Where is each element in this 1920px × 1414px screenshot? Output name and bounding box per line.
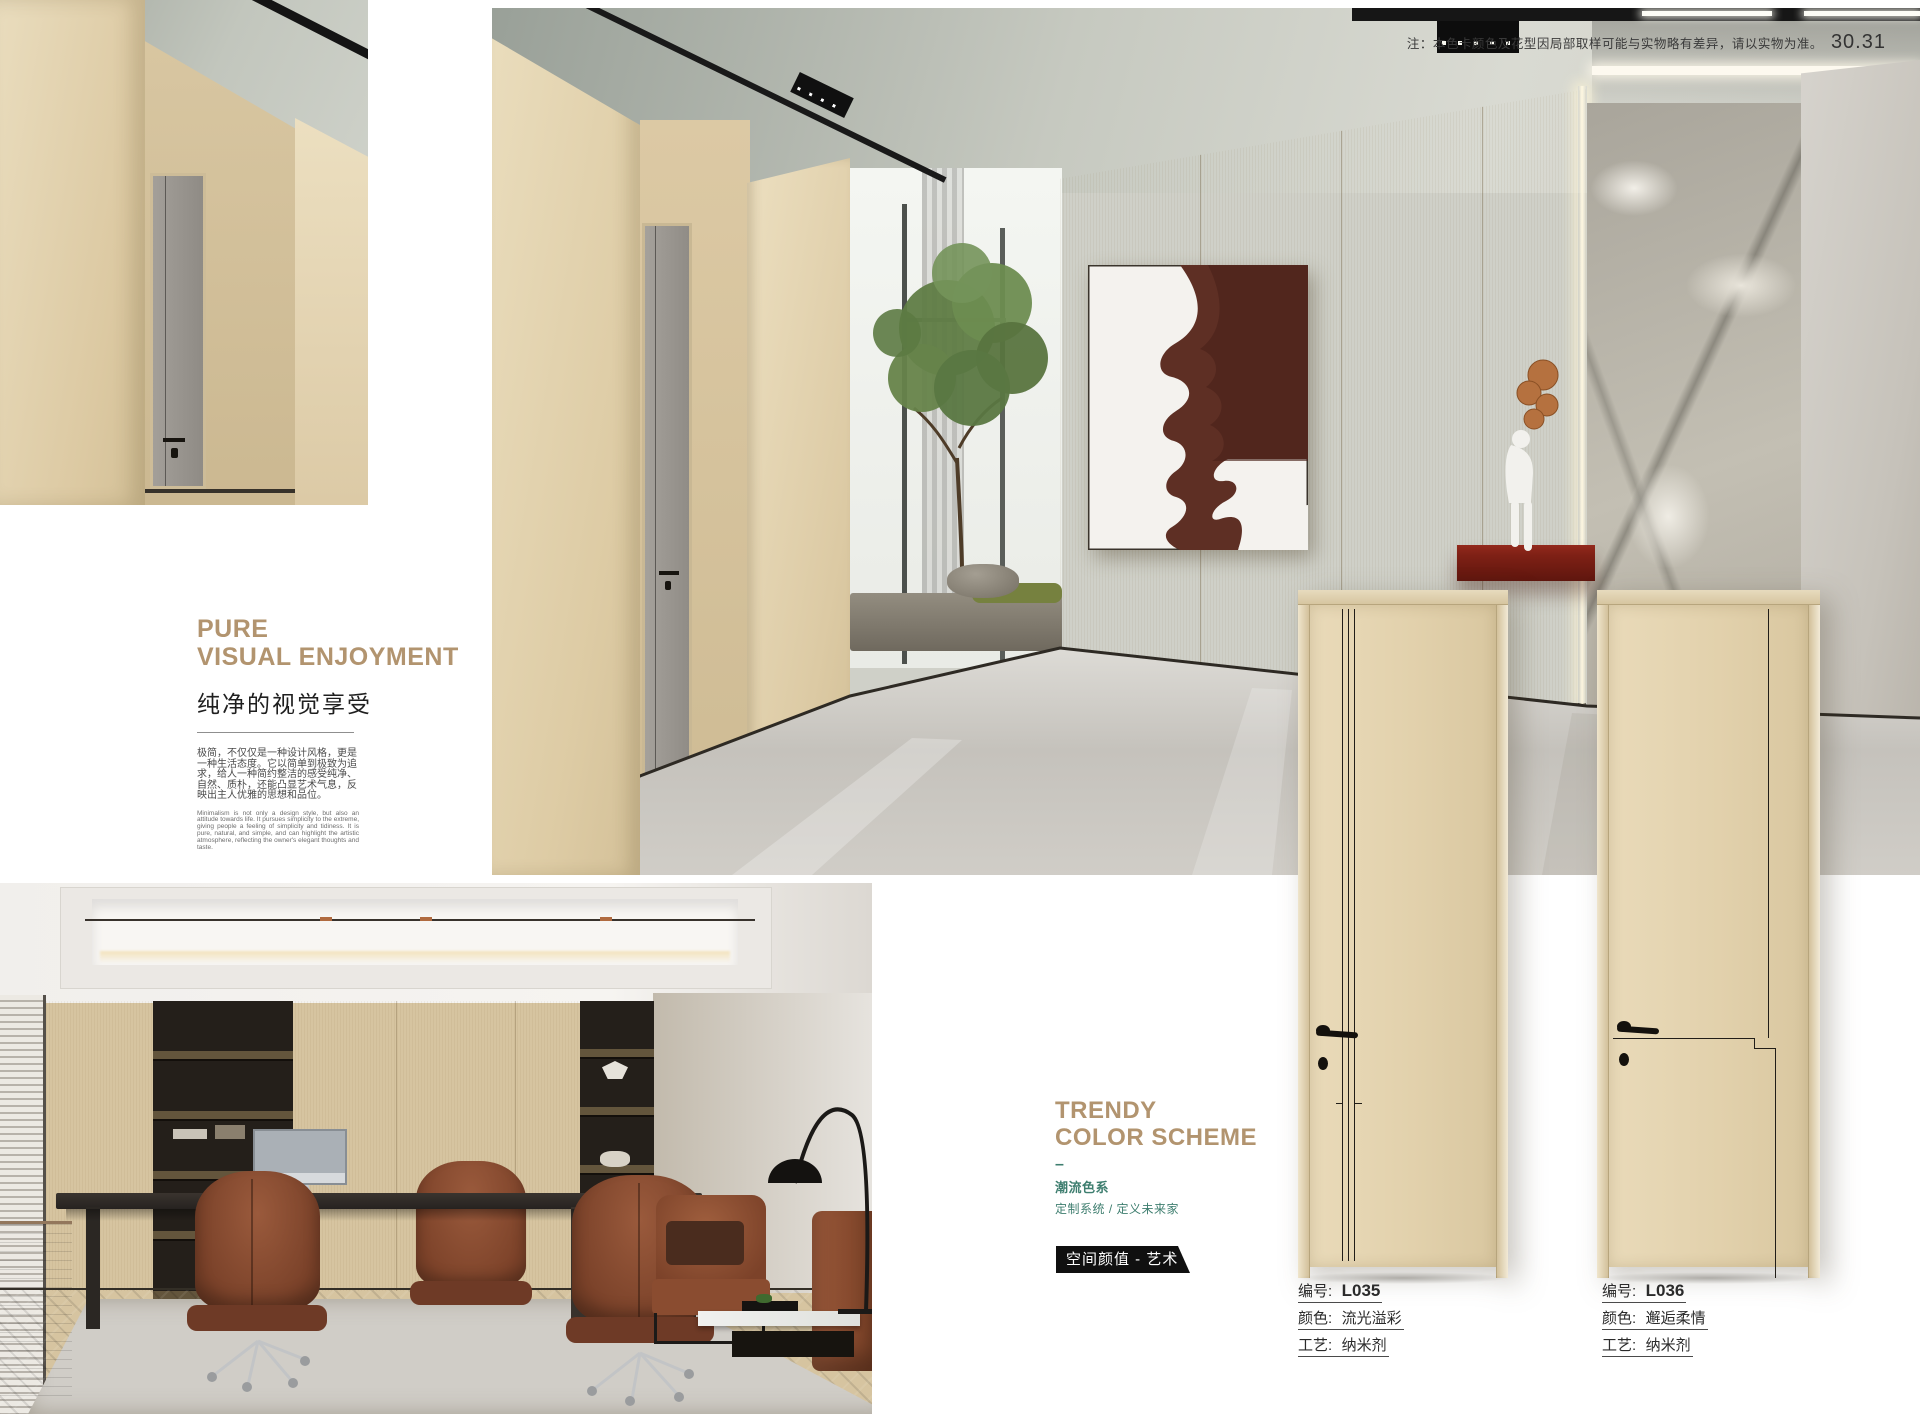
interior-door-gray bbox=[150, 173, 206, 489]
spec-craft-label: 工艺: bbox=[1298, 1337, 1332, 1354]
foreground-wall bbox=[492, 8, 640, 875]
badge-label: 空间颜值 - 艺术 bbox=[1056, 1246, 1190, 1273]
spec-craft-value: 纳米剂 bbox=[1646, 1337, 1691, 1354]
spec-code-label: 编号: bbox=[1298, 1283, 1332, 1300]
spec-craft-label: 工艺: bbox=[1602, 1337, 1636, 1354]
spec-color-label: 颜色: bbox=[1602, 1310, 1636, 1327]
trendy-subtitle-zh: 潮流色系 bbox=[1055, 1177, 1295, 1196]
spec-l036: 编号: L036 颜色: 邂逅柔情 工艺: 纳米剂 bbox=[1602, 1280, 1708, 1357]
pure-body-zh: 极简，不仅仅是一种设计风格，更是一种生活态度。它以简单到极致为追求，给人一种简约… bbox=[197, 749, 357, 802]
photo-door-corner bbox=[0, 0, 368, 505]
product-door-l036 bbox=[1597, 590, 1820, 1278]
right-wall bbox=[295, 118, 368, 505]
trendy-title-line1: TRENDY bbox=[1055, 1098, 1295, 1125]
catalog-page: 注：本色卡颜色及花型因局部取样可能与实物略有差异，请以实物为准。 30.31 P… bbox=[0, 0, 1920, 1414]
door-handle bbox=[163, 438, 185, 442]
trendy-section: TRENDY COLOR SCHEME – 潮流色系 定制系统 / 定义未来家 bbox=[1055, 1098, 1295, 1217]
door-lock bbox=[1619, 1053, 1629, 1066]
foreground-wall bbox=[0, 0, 145, 505]
pure-title-line1: PURE bbox=[197, 615, 387, 643]
page-number: 30.31 bbox=[1831, 31, 1886, 54]
product-door-l035 bbox=[1298, 590, 1508, 1278]
spec-code-value: L036 bbox=[1646, 1281, 1685, 1300]
trendy-title-line2: COLOR SCHEME bbox=[1055, 1125, 1295, 1152]
door-leaf bbox=[1609, 605, 1808, 1267]
spec-craft-value: 纳米剂 bbox=[1342, 1337, 1387, 1354]
spec-color-label: 颜色: bbox=[1298, 1310, 1332, 1327]
category-badge: 空间颜值 - 艺术 bbox=[1056, 1246, 1190, 1273]
pure-title-line2: VISUAL ENJOYMENT bbox=[197, 643, 387, 671]
trendy-tagline-zh: 定制系统 / 定义未来家 bbox=[1055, 1200, 1295, 1217]
spec-l035: 编号: L035 颜色: 流光溢彩 工艺: 纳米剂 bbox=[1298, 1280, 1404, 1357]
disclaimer-note: 注：本色卡颜色及花型因局部取样可能与实物略有差异，请以实物为准。 30.31 bbox=[1407, 31, 1886, 54]
note-text: 注：本色卡颜色及花型因局部取样可能与实物略有差异，请以实物为准。 bbox=[1407, 33, 1823, 52]
door-lock bbox=[1318, 1057, 1328, 1070]
spec-color-value: 流光溢彩 bbox=[1342, 1310, 1402, 1327]
door-leaf bbox=[1310, 605, 1496, 1267]
floor-lamp bbox=[0, 883, 872, 1414]
pure-subtitle-zh: 纯净的视觉享受 bbox=[197, 685, 387, 719]
pure-body-en: Minimalism is not only a design style, b… bbox=[197, 811, 359, 852]
trendy-dash: – bbox=[1055, 1160, 1295, 1170]
spec-code-value: L035 bbox=[1342, 1281, 1381, 1300]
photo-office bbox=[0, 883, 872, 1414]
pure-section: PURE VISUAL ENJOYMENT 纯净的视觉享受 极简，不仅仅是一种设… bbox=[197, 615, 387, 852]
spec-code-label: 编号: bbox=[1602, 1283, 1636, 1300]
spec-color-value: 邂逅柔情 bbox=[1646, 1310, 1706, 1327]
divider-line bbox=[197, 732, 354, 733]
